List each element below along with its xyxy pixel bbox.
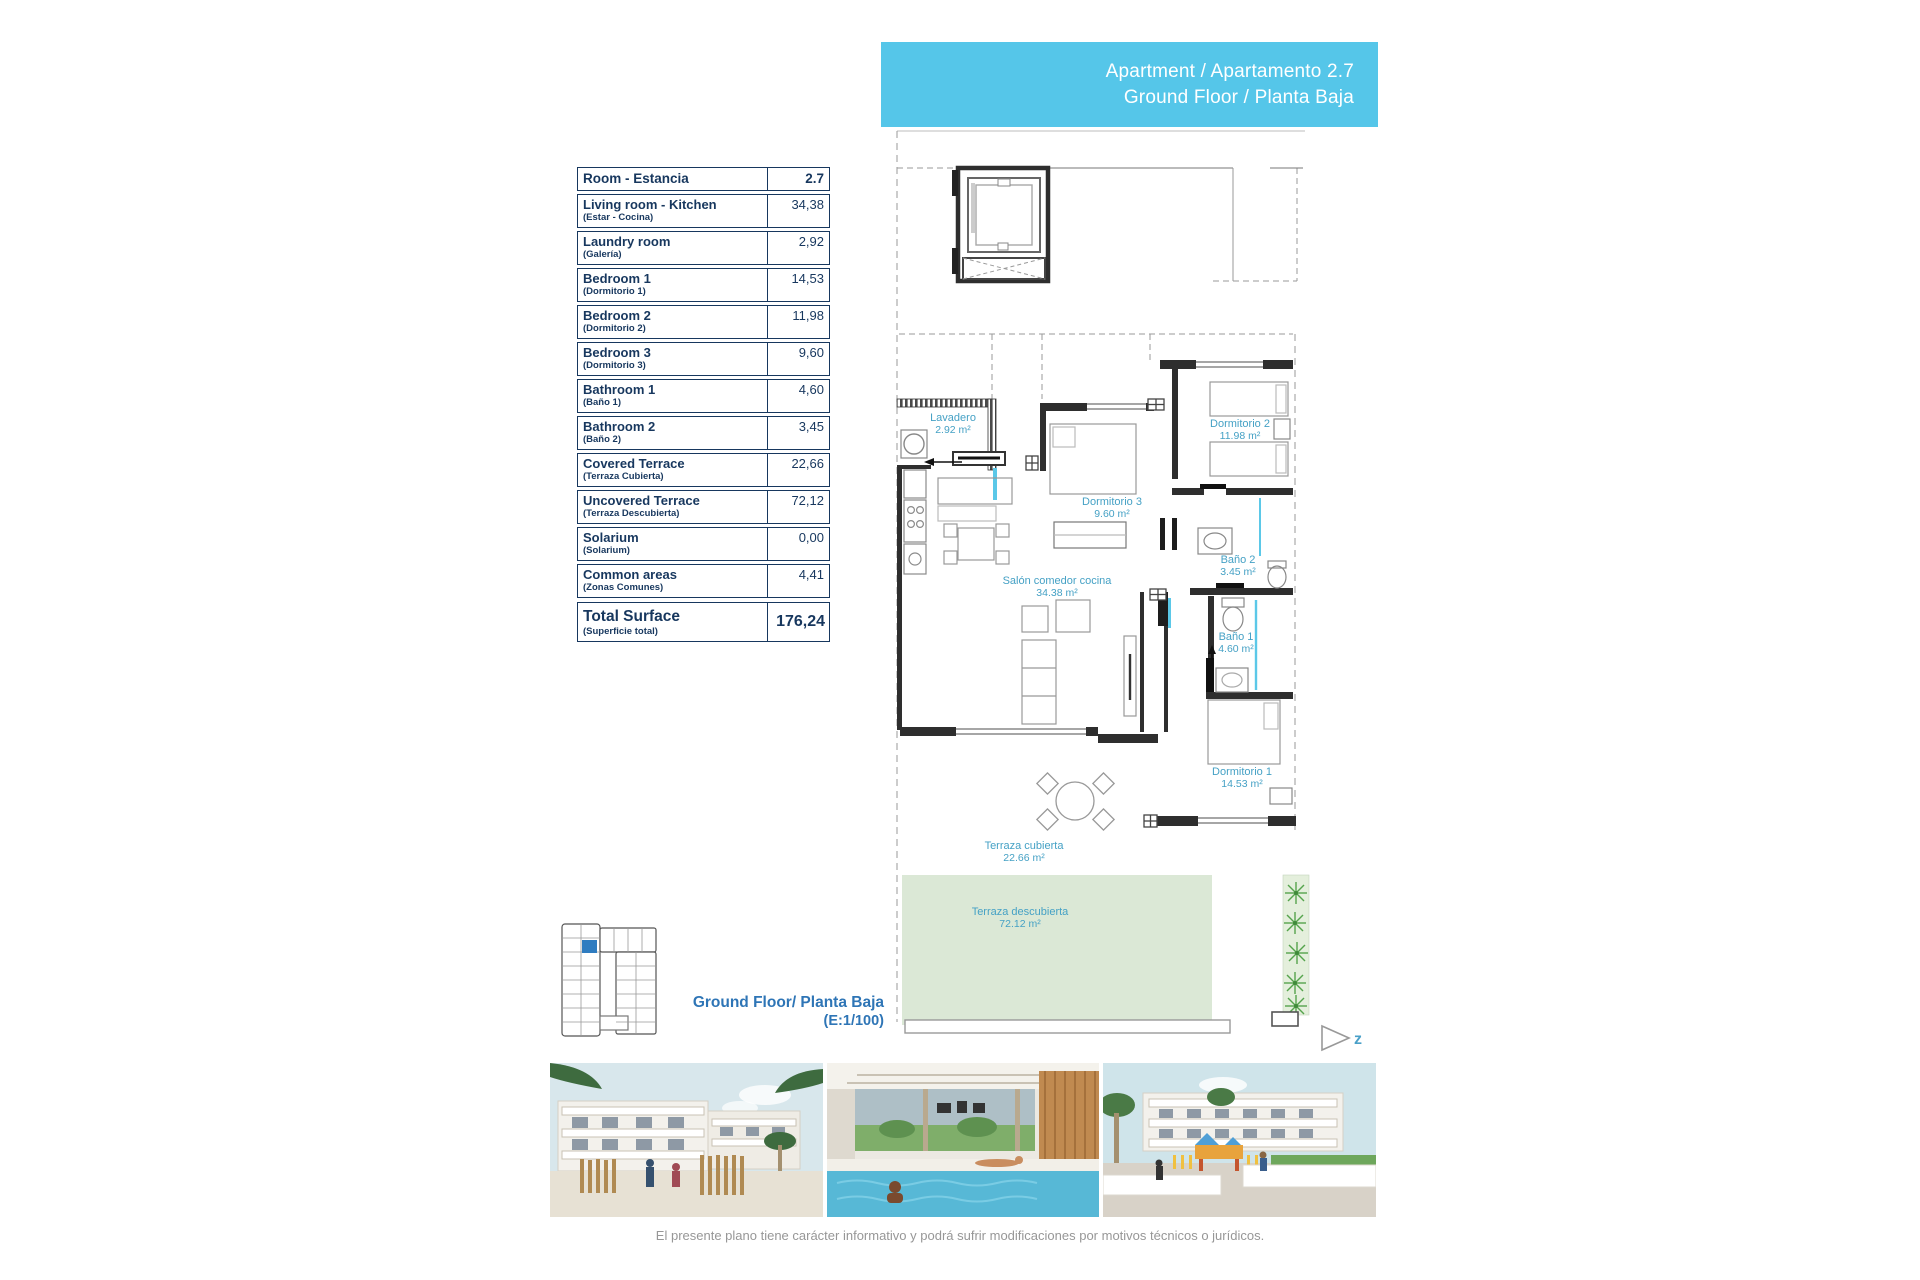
- svg-text:3.45 m²: 3.45 m²: [1220, 566, 1256, 578]
- floor-plan: z Lavadero 2.92 m² Dormitorio 2 11.98 m²…: [880, 120, 1380, 1065]
- stair-flight: [963, 258, 1045, 279]
- svg-text:4.60 m²: 4.60 m²: [1218, 643, 1254, 655]
- row-value: 3,45: [767, 417, 829, 449]
- plan-sheet: Apartment / Apartamento 2.7 Ground Floor…: [0, 0, 1920, 1280]
- row-label: Bedroom 1: [583, 271, 763, 286]
- title-banner: Apartment / Apartamento 2.7 Ground Floor…: [881, 42, 1378, 127]
- row-value: 0,00: [767, 528, 829, 560]
- row-sublabel: (Galería): [583, 249, 763, 261]
- highlighted-unit: [582, 940, 597, 953]
- row-value: 34,38: [767, 195, 829, 227]
- room-label-salon: Salón comedor cocina: [1003, 575, 1113, 587]
- row-value: 72,12: [767, 491, 829, 523]
- table-row: Bedroom 1(Dormitorio 1) 14,53: [577, 268, 830, 302]
- row-label: Common areas: [583, 567, 763, 582]
- row-value: 22,66: [767, 454, 829, 486]
- row-sublabel: (Baño 2): [583, 434, 763, 446]
- row-sublabel: (Terraza Descubierta): [583, 508, 763, 520]
- surface-table: Room - Estancia 2.7 Living room - Kitche…: [577, 167, 830, 642]
- table-row: Laundry room(Galería) 2,92: [577, 231, 830, 265]
- svg-text:22.66 m²: 22.66 m²: [1003, 852, 1045, 864]
- terrace-dining-set: [1037, 773, 1114, 830]
- table-row: Bedroom 2(Dormitorio 2) 11,98: [577, 305, 830, 339]
- uncovered-terrace-area: [902, 875, 1212, 1025]
- row-sublabel: (Terraza Cubierta): [583, 471, 763, 483]
- row-label: Living room - Kitchen: [583, 197, 763, 212]
- vent-cross-symbols: [1026, 399, 1166, 827]
- room-label-bano2: Baño 2: [1221, 554, 1256, 566]
- row-sublabel: (Baño 1): [583, 397, 763, 409]
- total-sublabel: (Superficie total): [583, 626, 763, 638]
- floor-title: Ground Floor / Planta Baja: [1124, 85, 1354, 111]
- table-row: Bedroom 3(Dormitorio 3) 9,60: [577, 342, 830, 376]
- table-header-label: Room - Estancia: [578, 168, 767, 190]
- row-value: 4,41: [767, 565, 829, 597]
- row-label: Laundry room: [583, 234, 763, 249]
- caption-scale: (E:1/100): [560, 1012, 884, 1030]
- room-label-terraza-cubierta: Terraza cubierta: [985, 840, 1065, 852]
- north-arrow-icon: z: [1322, 1026, 1362, 1050]
- disclaimer-text: El presente plano tiene carácter informa…: [0, 1228, 1920, 1243]
- table-header-row: Room - Estancia 2.7: [577, 167, 830, 191]
- row-value: 4,60: [767, 380, 829, 412]
- living-furniture: [1022, 600, 1136, 724]
- row-label: Bathroom 1: [583, 382, 763, 397]
- room-label-bano1: Baño 1: [1219, 631, 1254, 643]
- row-sublabel: (Dormitorio 3): [583, 360, 763, 372]
- photo-exterior-street: [550, 1063, 823, 1217]
- row-label: Covered Terrace: [583, 456, 763, 471]
- row-sublabel: (Dormitorio 2): [583, 323, 763, 335]
- svg-text:11.98 m²: 11.98 m²: [1220, 430, 1261, 442]
- table-row: Common areas(Zonas Comunes) 4,41: [577, 564, 830, 598]
- row-sublabel: (Solarium): [583, 545, 763, 557]
- dining-set: [944, 524, 1009, 564]
- caption-floor: Ground Floor/ Planta Baja: [560, 994, 884, 1012]
- row-value: 11,98: [767, 306, 829, 338]
- table-row: Uncovered Terrace(Terraza Descubierta) 7…: [577, 490, 830, 524]
- row-label: Bathroom 2: [583, 419, 763, 434]
- photo-pool-pergola: [827, 1063, 1099, 1217]
- table-header-value: 2.7: [767, 168, 829, 190]
- row-sublabel: (Dormitorio 1): [583, 286, 763, 298]
- row-label: Solarium: [583, 530, 763, 545]
- row-label: Bedroom 3: [583, 345, 763, 360]
- row-label: Uncovered Terrace: [583, 493, 763, 508]
- render-photos: [550, 1063, 1376, 1217]
- row-value: 9,60: [767, 343, 829, 375]
- table-row: Living room - Kitchen(Estar - Cocina) 34…: [577, 194, 830, 228]
- total-value: 176,24: [767, 603, 829, 641]
- scale-caption: Ground Floor/ Planta Baja (E:1/100): [560, 994, 884, 1030]
- room-label-lavadero: Lavadero: [930, 412, 976, 424]
- svg-text:72.12 m²: 72.12 m²: [999, 918, 1041, 930]
- table-row: Bathroom 2(Baño 2) 3,45: [577, 416, 830, 450]
- row-value: 2,92: [767, 232, 829, 264]
- svg-text:2.92 m²: 2.92 m²: [935, 424, 971, 436]
- apartment-title: Apartment / Apartamento 2.7: [1106, 59, 1354, 85]
- room-label-dormitorio3: Dormitorio 3: [1082, 496, 1142, 508]
- elevator-core: [952, 168, 1048, 281]
- room-labels: Lavadero 2.92 m² Dormitorio 2 11.98 m² D…: [930, 412, 1272, 930]
- table-row: Solarium(Solarium) 0,00: [577, 527, 830, 561]
- table-row: Bathroom 1(Baño 1) 4,60: [577, 379, 830, 413]
- table-total-row: Total Surface(Superficie total) 176,24: [577, 602, 830, 642]
- svg-text:14.53 m²: 14.53 m²: [1221, 778, 1263, 790]
- north-label: z: [1354, 1031, 1362, 1048]
- row-label: Bedroom 2: [583, 308, 763, 323]
- photo-playground: [1103, 1063, 1376, 1217]
- bedroom3-furniture: [1050, 424, 1136, 548]
- row-sublabel: (Zonas Comunes): [583, 582, 763, 594]
- svg-text:9.60 m²: 9.60 m²: [1094, 508, 1130, 520]
- room-label-dormitorio1: Dormitorio 1: [1212, 766, 1272, 778]
- room-label-dormitorio2: Dormitorio 2: [1210, 418, 1270, 430]
- row-sublabel: (Estar - Cocina): [583, 212, 763, 224]
- svg-text:34.38 m²: 34.38 m²: [1036, 587, 1078, 599]
- total-label: Total Surface: [583, 605, 763, 626]
- row-value: 14,53: [767, 269, 829, 301]
- room-label-terraza-descubierta: Terraza descubierta: [972, 906, 1069, 918]
- table-row: Covered Terrace(Terraza Cubierta) 22,66: [577, 453, 830, 487]
